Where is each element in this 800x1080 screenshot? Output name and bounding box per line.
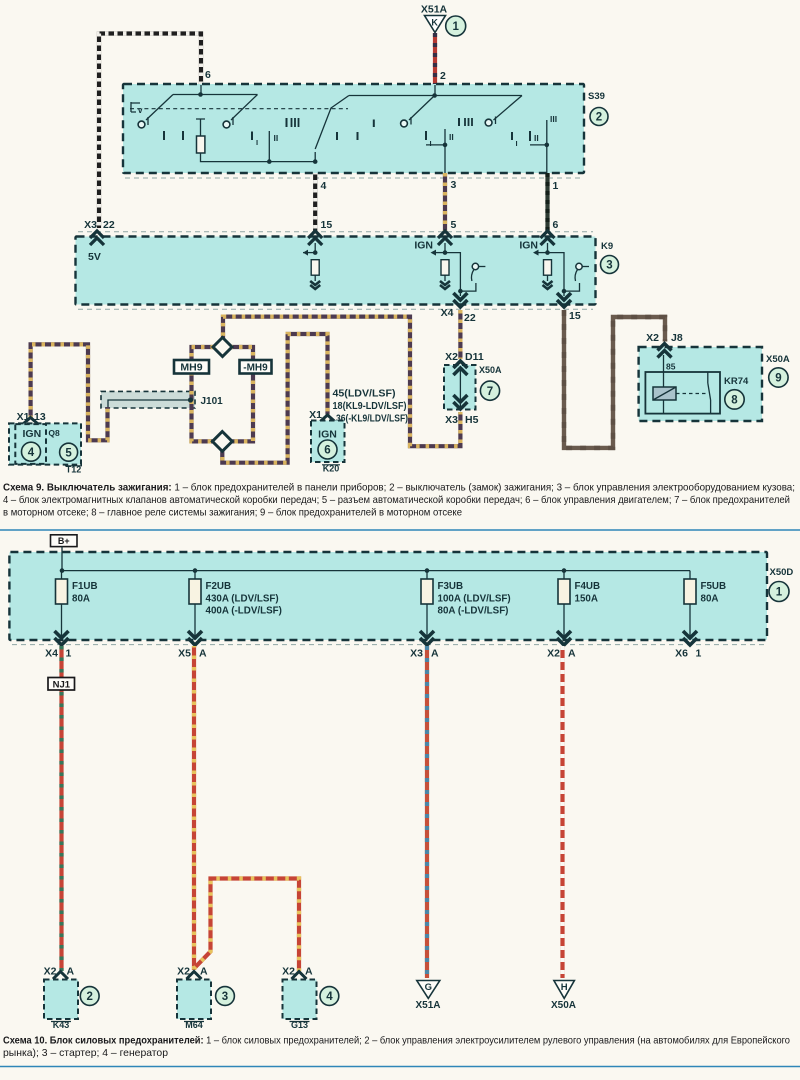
svg-text:4: 4	[321, 180, 327, 192]
svg-text:X50A: X50A	[479, 365, 502, 375]
svg-text:3: 3	[606, 260, 612, 272]
svg-text:MH9: MH9	[180, 362, 202, 374]
svg-text:X5: X5	[178, 648, 191, 660]
svg-text:Q8: Q8	[48, 428, 60, 438]
svg-text:D11: D11	[465, 351, 484, 363]
svg-text:I: I	[516, 139, 518, 148]
svg-text:4: 4	[28, 447, 35, 459]
svg-text:7: 7	[487, 386, 493, 398]
svg-text:K9: K9	[601, 241, 613, 252]
svg-text:X51A: X51A	[415, 1000, 440, 1011]
svg-text:5: 5	[65, 447, 72, 459]
svg-text:I: I	[430, 139, 432, 148]
svg-text:85: 85	[666, 362, 676, 372]
svg-text:1: 1	[553, 180, 559, 192]
svg-text:III: III	[550, 114, 557, 124]
svg-text:80A: 80A	[72, 593, 90, 604]
svg-text:6: 6	[553, 219, 559, 231]
svg-text:150A: 150A	[575, 593, 598, 604]
svg-text:22: 22	[464, 312, 476, 324]
svg-text:рынка); 3 – стартер; 4 – генер: рынка); 3 – стартер; 4 – генератор	[3, 1048, 168, 1059]
svg-text:IGN: IGN	[519, 240, 538, 252]
svg-text:Схема 9. Выключатель зажигания: Схема 9. Выключатель зажигания: 1 – блок…	[3, 482, 795, 494]
svg-text:A: A	[200, 966, 208, 978]
svg-text:6: 6	[205, 69, 211, 81]
svg-text:6: 6	[324, 445, 330, 457]
svg-text:X2: X2	[547, 648, 560, 660]
svg-text:2: 2	[86, 991, 92, 1003]
svg-text:v: v	[138, 106, 143, 115]
svg-text:F2UB: F2UB	[206, 581, 232, 592]
svg-text:X4: X4	[441, 307, 454, 319]
svg-text:A: A	[431, 648, 439, 660]
svg-text:5V: 5V	[88, 251, 101, 263]
svg-text:5: 5	[451, 219, 457, 231]
svg-text:X3: X3	[84, 219, 97, 231]
svg-text:22: 22	[103, 219, 115, 231]
svg-text:K: K	[431, 18, 438, 28]
svg-text:I: I	[256, 138, 258, 147]
svg-text:36(-KL9/LDV/LSF): 36(-KL9/LDV/LSF)	[336, 414, 408, 425]
svg-text:18(KL9-LDV/LSF): 18(KL9-LDV/LSF)	[333, 401, 407, 412]
svg-text:80A: 80A	[701, 593, 719, 604]
svg-text:A: A	[305, 966, 313, 978]
svg-text:H5: H5	[465, 414, 479, 426]
svg-text:1: 1	[66, 648, 72, 660]
svg-text:S39: S39	[588, 91, 605, 102]
svg-text:в моторном отсеке; 8 – главное: в моторном отсеке; 8 – главное реле сист…	[3, 507, 462, 519]
svg-text:4 – блок электромагнитных клап: 4 – блок электромагнитных клапанов автом…	[3, 494, 790, 506]
svg-text:8: 8	[731, 395, 738, 407]
svg-text:X1: X1	[309, 409, 322, 421]
svg-text:X3: X3	[445, 414, 458, 426]
svg-text:X2: X2	[646, 332, 659, 344]
svg-text:X50D: X50D	[770, 567, 794, 578]
svg-text:1: 1	[452, 21, 459, 33]
svg-text:9: 9	[775, 373, 781, 385]
svg-text:1: 1	[696, 648, 702, 660]
svg-text:B+: B+	[58, 536, 70, 546]
svg-text:400A (-LDV/LSF): 400A (-LDV/LSF)	[206, 606, 282, 617]
svg-text:KR74: KR74	[724, 376, 749, 387]
svg-text:II: II	[274, 133, 279, 143]
svg-text:45(LDV/LSF): 45(LDV/LSF)	[333, 389, 396, 400]
svg-text:15: 15	[321, 219, 333, 231]
svg-text:A: A	[199, 648, 207, 660]
svg-text:H: H	[561, 982, 568, 993]
svg-text:A: A	[568, 648, 576, 660]
svg-text:2: 2	[596, 112, 602, 124]
svg-text:G: G	[425, 982, 432, 993]
svg-text:X2: X2	[445, 351, 458, 363]
svg-text:3: 3	[222, 991, 228, 1003]
svg-text:IGN: IGN	[318, 429, 337, 441]
svg-text:F4UB: F4UB	[575, 581, 601, 592]
svg-text:F5UB: F5UB	[701, 581, 727, 592]
svg-text:3: 3	[451, 179, 457, 191]
svg-text:100A (LDV/LSF): 100A (LDV/LSF)	[438, 593, 511, 604]
svg-text:2: 2	[440, 70, 446, 82]
svg-text:80A (-LDV/LSF): 80A (-LDV/LSF)	[438, 606, 509, 617]
svg-text:IGN: IGN	[23, 428, 42, 440]
svg-text:F3UB: F3UB	[438, 581, 464, 592]
svg-text:X3: X3	[410, 648, 423, 660]
svg-text:Схема 10. Блок силовых предохр: Схема 10. Блок силовых предохранителей: …	[3, 1035, 790, 1047]
svg-text:II: II	[449, 132, 454, 142]
svg-text:15: 15	[569, 310, 581, 322]
svg-text:X50A: X50A	[766, 354, 790, 365]
svg-text:X4: X4	[45, 648, 58, 660]
svg-text:II: II	[534, 133, 539, 143]
svg-text:1: 1	[776, 587, 783, 599]
svg-text:J101: J101	[201, 396, 224, 407]
svg-text:X6: X6	[675, 648, 688, 660]
svg-text:X51A: X51A	[421, 4, 448, 16]
svg-text:IGN: IGN	[414, 240, 433, 252]
svg-text:4: 4	[326, 991, 333, 1003]
svg-text:NJ1: NJ1	[53, 679, 71, 690]
svg-text:J8: J8	[671, 332, 683, 344]
svg-text:430A (LDV/LSF): 430A (LDV/LSF)	[206, 593, 279, 604]
svg-text:F1UB: F1UB	[72, 581, 98, 592]
svg-text:-MH9: -MH9	[243, 363, 268, 374]
svg-text:X50A: X50A	[551, 1000, 576, 1011]
svg-text:A: A	[67, 966, 75, 978]
